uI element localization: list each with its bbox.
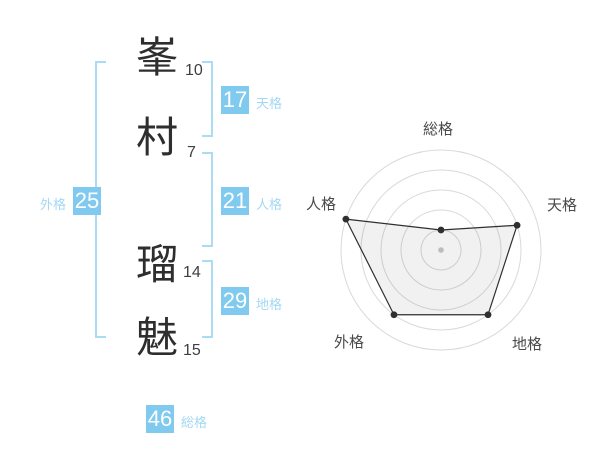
- radar-data-point: [485, 311, 492, 318]
- radar-data-point: [342, 216, 349, 223]
- radar-axis-label: 天格: [547, 197, 577, 214]
- radar-data-point: [514, 222, 521, 229]
- radar-axis-label: 総格: [423, 121, 453, 138]
- radar-data-point: [391, 311, 398, 318]
- radar-chart: 総格天格地格外格人格: [0, 0, 600, 470]
- radar-data-polygon: [346, 219, 517, 315]
- radar-data-point: [438, 227, 445, 234]
- radar-center-dot: [438, 247, 444, 253]
- radar-axis-label: 人格: [306, 196, 336, 213]
- radar-axis-label: 外格: [334, 334, 364, 351]
- radar-axis-label: 地格: [512, 336, 542, 353]
